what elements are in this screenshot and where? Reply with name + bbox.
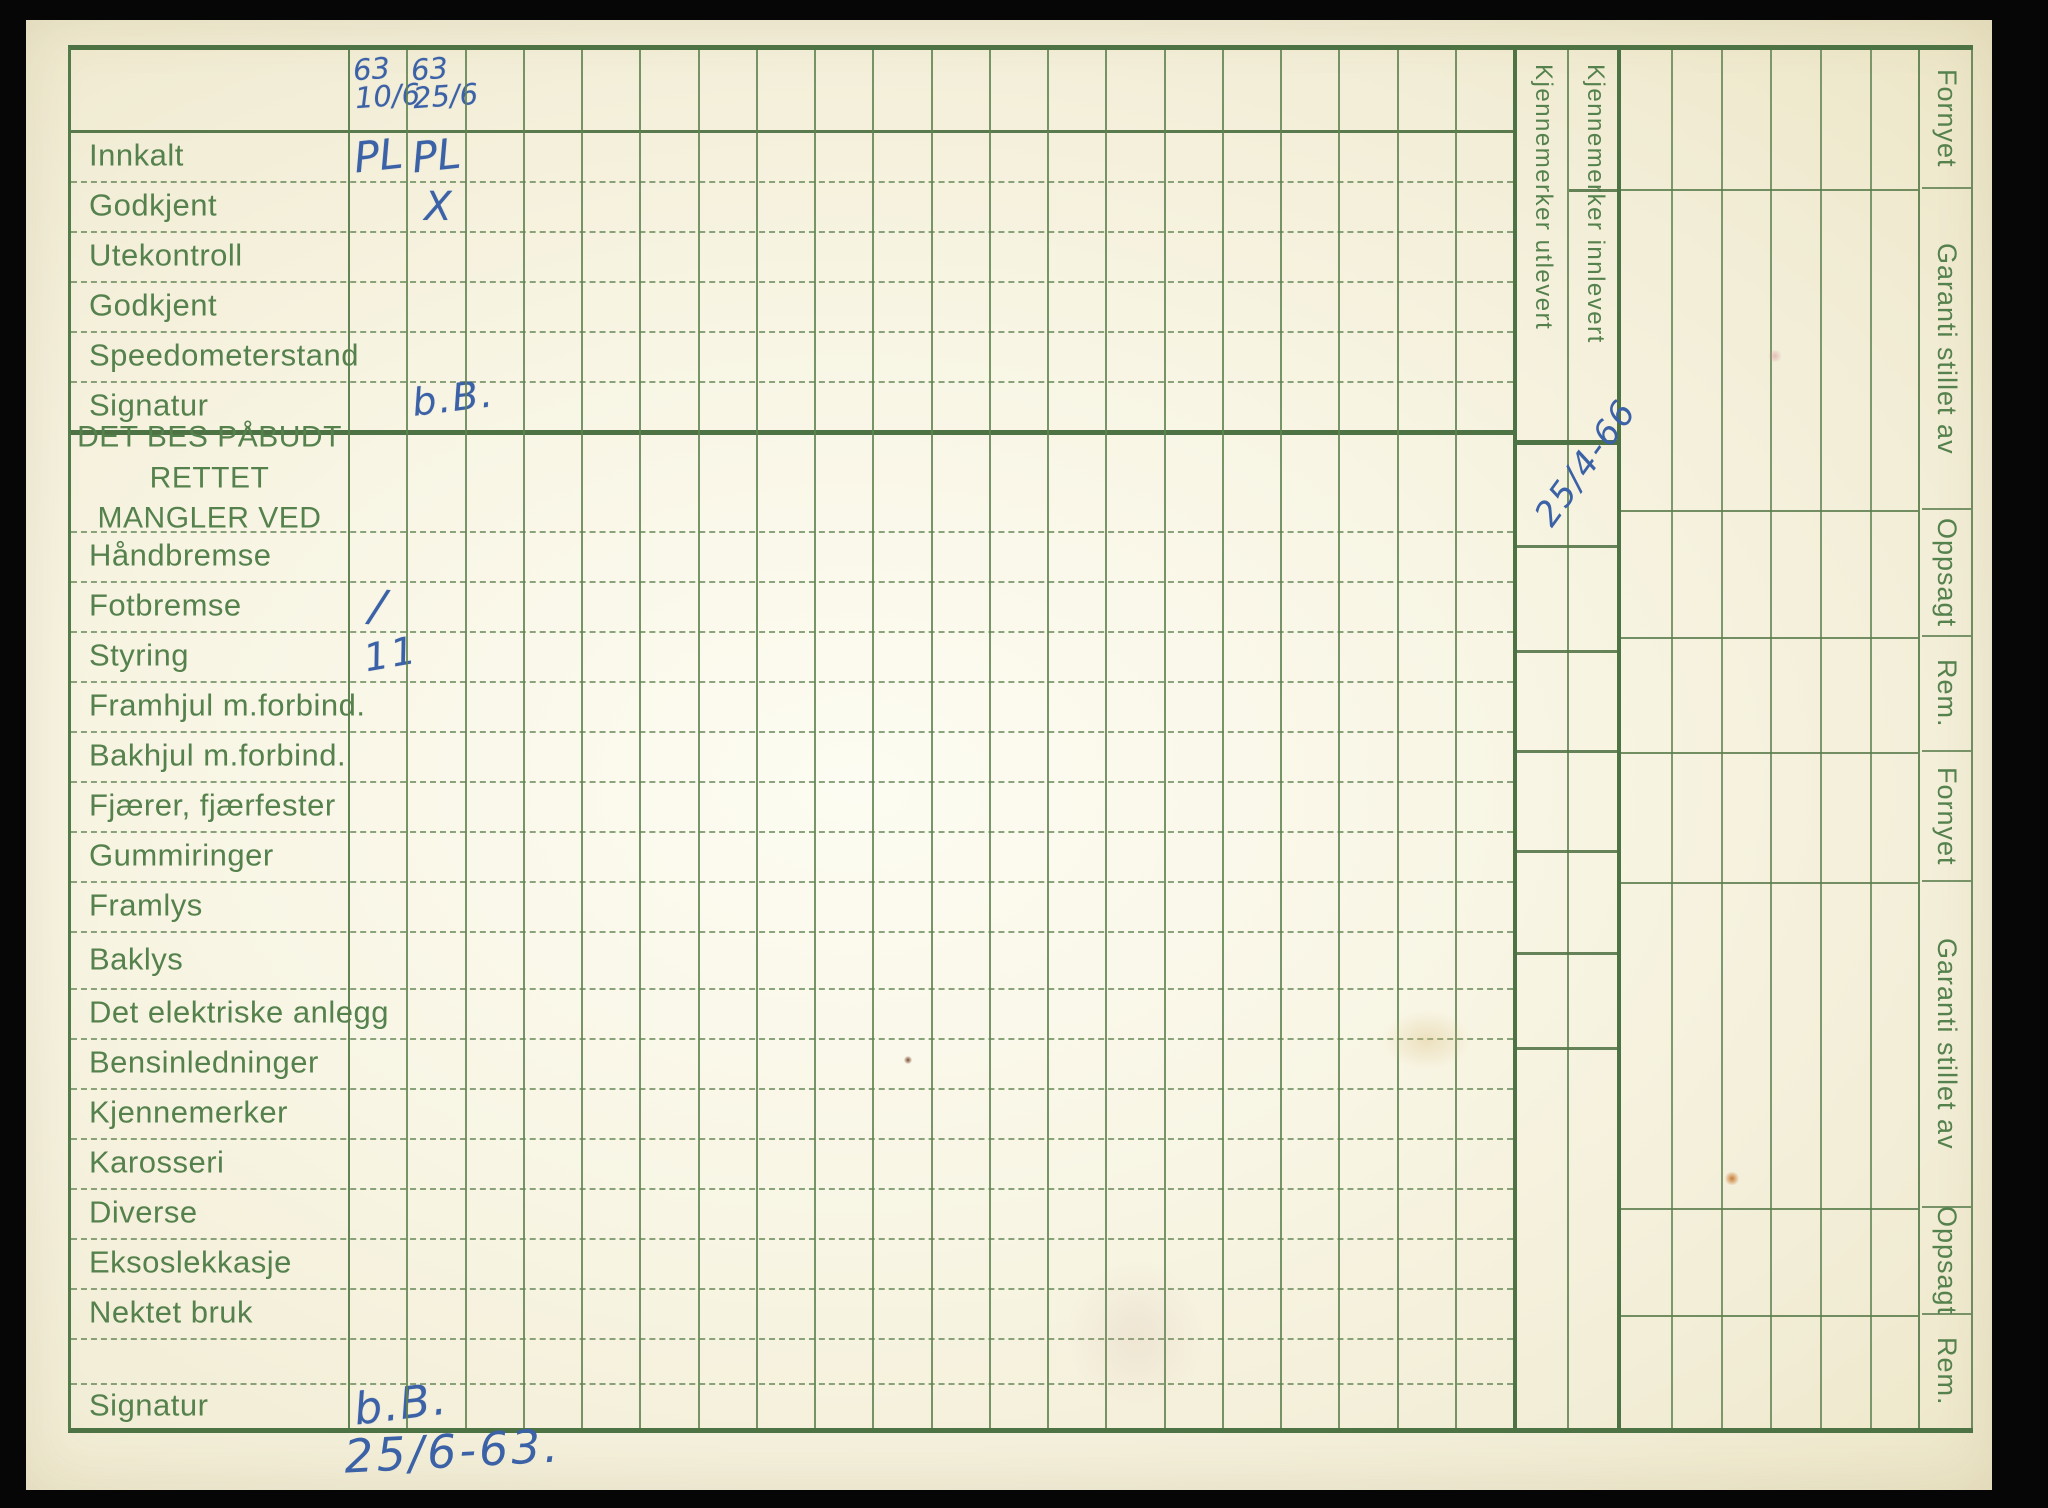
kjennemerker-section-line	[1517, 650, 1617, 653]
handwritten-entry: PL	[352, 133, 405, 180]
right-section-labels: FornyetGaranti stillet avOppsagtRem.Forn…	[1922, 50, 1973, 1428]
narrow-column-line	[1721, 50, 1723, 1428]
row-label: Bensinledninger	[89, 1045, 319, 1081]
kjennemerker-innlevert-label: Kjennemerker innlevert	[1581, 64, 1609, 344]
handwritten-date-below-table: 25/6-63.	[343, 1418, 563, 1483]
row-label: Håndbremse	[89, 538, 271, 574]
handwritten-entry: b.B.	[410, 374, 496, 422]
table-row: Diverse	[71, 1190, 1513, 1240]
kjennemerker-section-line	[1517, 750, 1617, 753]
narrow-section-line	[1621, 1208, 1918, 1210]
table-row: Eksoslekkasje	[71, 1240, 1513, 1290]
table-row: InnkaltPLPL	[71, 133, 1513, 183]
narrow-column-line	[1820, 50, 1822, 1428]
right-section-label: Fornyet	[1931, 767, 1962, 866]
right-section: Fornyet	[1922, 50, 1971, 189]
table-row: Nektet bruk	[71, 1290, 1513, 1340]
right-section: Garanti stillet av	[1922, 189, 1971, 510]
row-label: Innkalt	[89, 138, 184, 174]
row-label: Det elektriske anlegg	[89, 995, 389, 1031]
right-section: Oppsagt	[1922, 510, 1971, 637]
handwritten-entry: /	[368, 584, 387, 629]
table-row: Styring11	[71, 633, 1513, 683]
table-row: Håndbremse	[71, 533, 1513, 583]
table-row: Baklys	[71, 933, 1513, 990]
kjennemerker-utlevert-label: Kjennemerker utlevert	[1529, 64, 1557, 330]
right-section-label: Oppsagt	[1931, 518, 1962, 627]
table-row: 63 10/663 25/6	[71, 50, 1513, 133]
narrow-section-line	[1621, 189, 1918, 191]
handwritten-entry: 11	[361, 631, 421, 678]
kjennemerker-section-line	[1517, 545, 1617, 548]
table-row: GodkjentX	[71, 183, 1513, 233]
right-section: Rem.	[1922, 637, 1971, 752]
row-label: Framlys	[89, 888, 203, 924]
handwritten-entry: 63 25/6	[410, 53, 479, 113]
narrow-section-line	[1621, 637, 1918, 639]
narrow-section-line	[1621, 752, 1918, 754]
table-row: Kjennemerker	[71, 1090, 1513, 1140]
right-section-label: Rem.	[1931, 1337, 1962, 1406]
right-section-label: Garanti stillet av	[1931, 243, 1962, 455]
right-section-label: Fornyet	[1931, 69, 1962, 168]
scanned-inspection-card-page: { "card": { "rows": [ {"label": "", "h":…	[0, 0, 2048, 1508]
right-section-label: Oppsagt	[1931, 1206, 1962, 1315]
table-row: Bakhjul m.forbind.	[71, 733, 1513, 783]
table-row: Signaturb.B.	[71, 1385, 1513, 1428]
row-label: Gummiringer	[89, 838, 274, 874]
row-label: Baklys	[89, 941, 183, 977]
table-row: Framhjul m.forbind.	[71, 683, 1513, 733]
narrow-columns	[1621, 50, 1920, 1428]
row-label: Fjærer, fjærfester	[89, 788, 336, 824]
handwritten-entry: PL	[410, 133, 463, 180]
table-row: Framlys	[71, 883, 1513, 933]
narrow-section-line	[1621, 510, 1918, 512]
table-row	[71, 1340, 1513, 1385]
right-section-label: Rem.	[1931, 659, 1962, 728]
row-label: Framhjul m.forbind.	[89, 688, 366, 724]
kjennemerker-section-line	[1517, 952, 1617, 955]
table-row: Fotbremse/	[71, 583, 1513, 633]
table-row: Bensinledninger	[71, 1040, 1513, 1090]
right-section-label: Garanti stillet av	[1931, 938, 1962, 1150]
kjennemerker-columns: Kjennemerker utlevert Kjennemerker innle…	[1513, 50, 1621, 1428]
table-row: Fjærer, fjærfester	[71, 783, 1513, 833]
right-section: Oppsagt	[1922, 1208, 1971, 1315]
narrow-section-line	[1621, 1315, 1918, 1317]
narrow-section-line	[1621, 882, 1918, 884]
row-label: Signatur	[89, 1387, 208, 1423]
row-label: Diverse	[89, 1195, 198, 1231]
row-label: Eksoslekkasje	[89, 1245, 292, 1281]
inspection-card-paper: 63 10/663 25/6InnkaltPLPLGodkjentXUtekon…	[26, 20, 1992, 1490]
row-label: Speedometerstand	[89, 338, 359, 374]
table-row: Utekontroll	[71, 233, 1513, 283]
table-row: Godkjent	[71, 283, 1513, 333]
row-label: Styring	[89, 638, 189, 674]
row-label: Godkjent	[89, 288, 217, 324]
table-row: Det elektriske anlegg	[71, 990, 1513, 1040]
right-section: Rem.	[1922, 1315, 1971, 1428]
row-label: Nektet bruk	[89, 1295, 253, 1331]
row-label: Utekontroll	[89, 238, 243, 274]
handwritten-entry: X	[424, 187, 451, 227]
right-section: Fornyet	[1922, 752, 1971, 882]
narrow-column-line	[1671, 50, 1673, 1428]
narrow-column-line	[1870, 50, 1872, 1428]
kjennemerker-section-line	[1517, 1047, 1617, 1050]
table-row: Speedometerstand	[71, 333, 1513, 383]
row-label: Godkjent	[89, 188, 217, 224]
table-row: DET BES PÅBUDT RETTET MANGLER VED	[71, 435, 1513, 533]
section-title: DET BES PÅBUDT RETTET MANGLER VED	[71, 417, 348, 539]
inspection-table: 63 10/663 25/6InnkaltPLPLGodkjentXUtekon…	[68, 45, 1973, 1433]
kjennemerker-column-divider	[1567, 50, 1569, 1428]
row-label: Kjennemerker	[89, 1095, 288, 1131]
row-label: Bakhjul m.forbind.	[89, 738, 346, 774]
table-row: Gummiringer	[71, 833, 1513, 883]
narrow-column-line	[1770, 50, 1772, 1428]
row-list: 63 10/663 25/6InnkaltPLPLGodkjentXUtekon…	[71, 50, 1513, 1428]
table-row: Karosseri	[71, 1140, 1513, 1190]
kjennemerker-section-line	[1517, 850, 1617, 853]
row-label: Karosseri	[89, 1145, 224, 1181]
right-section: Garanti stillet av	[1922, 882, 1971, 1208]
kjennemerker-section-line	[1569, 189, 1617, 192]
row-label: Fotbremse	[89, 588, 242, 624]
